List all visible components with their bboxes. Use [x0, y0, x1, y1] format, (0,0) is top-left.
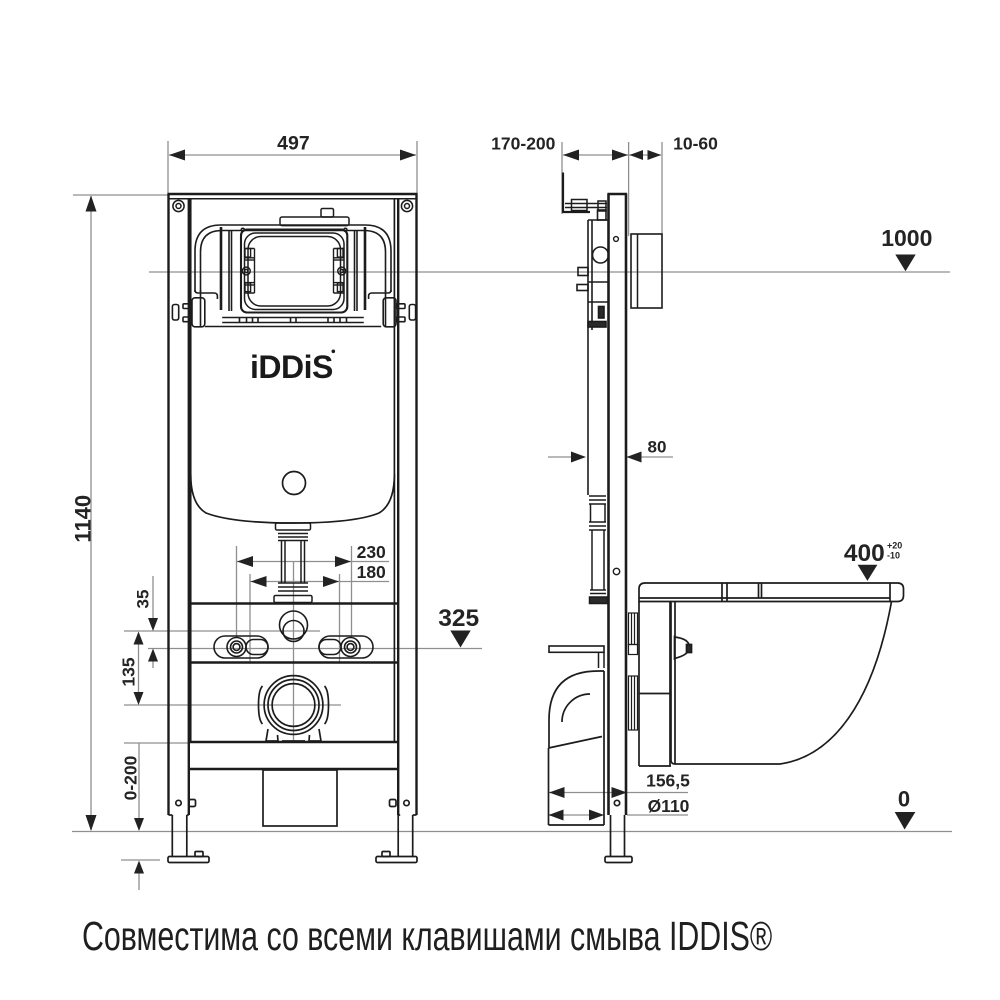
svg-text:1140: 1140 — [71, 495, 96, 543]
svg-text:1000: 1000 — [881, 225, 932, 251]
svg-text:-10: -10 — [887, 551, 900, 561]
svg-text:400: 400 — [844, 540, 885, 567]
svg-text:170-200: 170-200 — [491, 134, 555, 154]
svg-text:325: 325 — [438, 605, 479, 632]
svg-text:497: 497 — [277, 133, 310, 155]
svg-text:180: 180 — [357, 562, 386, 582]
svg-text:230: 230 — [357, 542, 386, 562]
svg-text:135: 135 — [119, 657, 139, 686]
svg-text:35: 35 — [134, 590, 153, 609]
svg-text:156,5: 156,5 — [646, 771, 690, 791]
svg-text:80: 80 — [648, 438, 667, 457]
svg-text:0-200: 0-200 — [121, 755, 141, 800]
svg-text:Ø110: Ø110 — [648, 796, 690, 816]
svg-text:iDDiS: iDDiS — [250, 349, 333, 385]
svg-text:+20: +20 — [887, 541, 902, 551]
svg-text:0: 0 — [898, 787, 910, 812]
svg-text:10-60: 10-60 — [673, 134, 718, 154]
